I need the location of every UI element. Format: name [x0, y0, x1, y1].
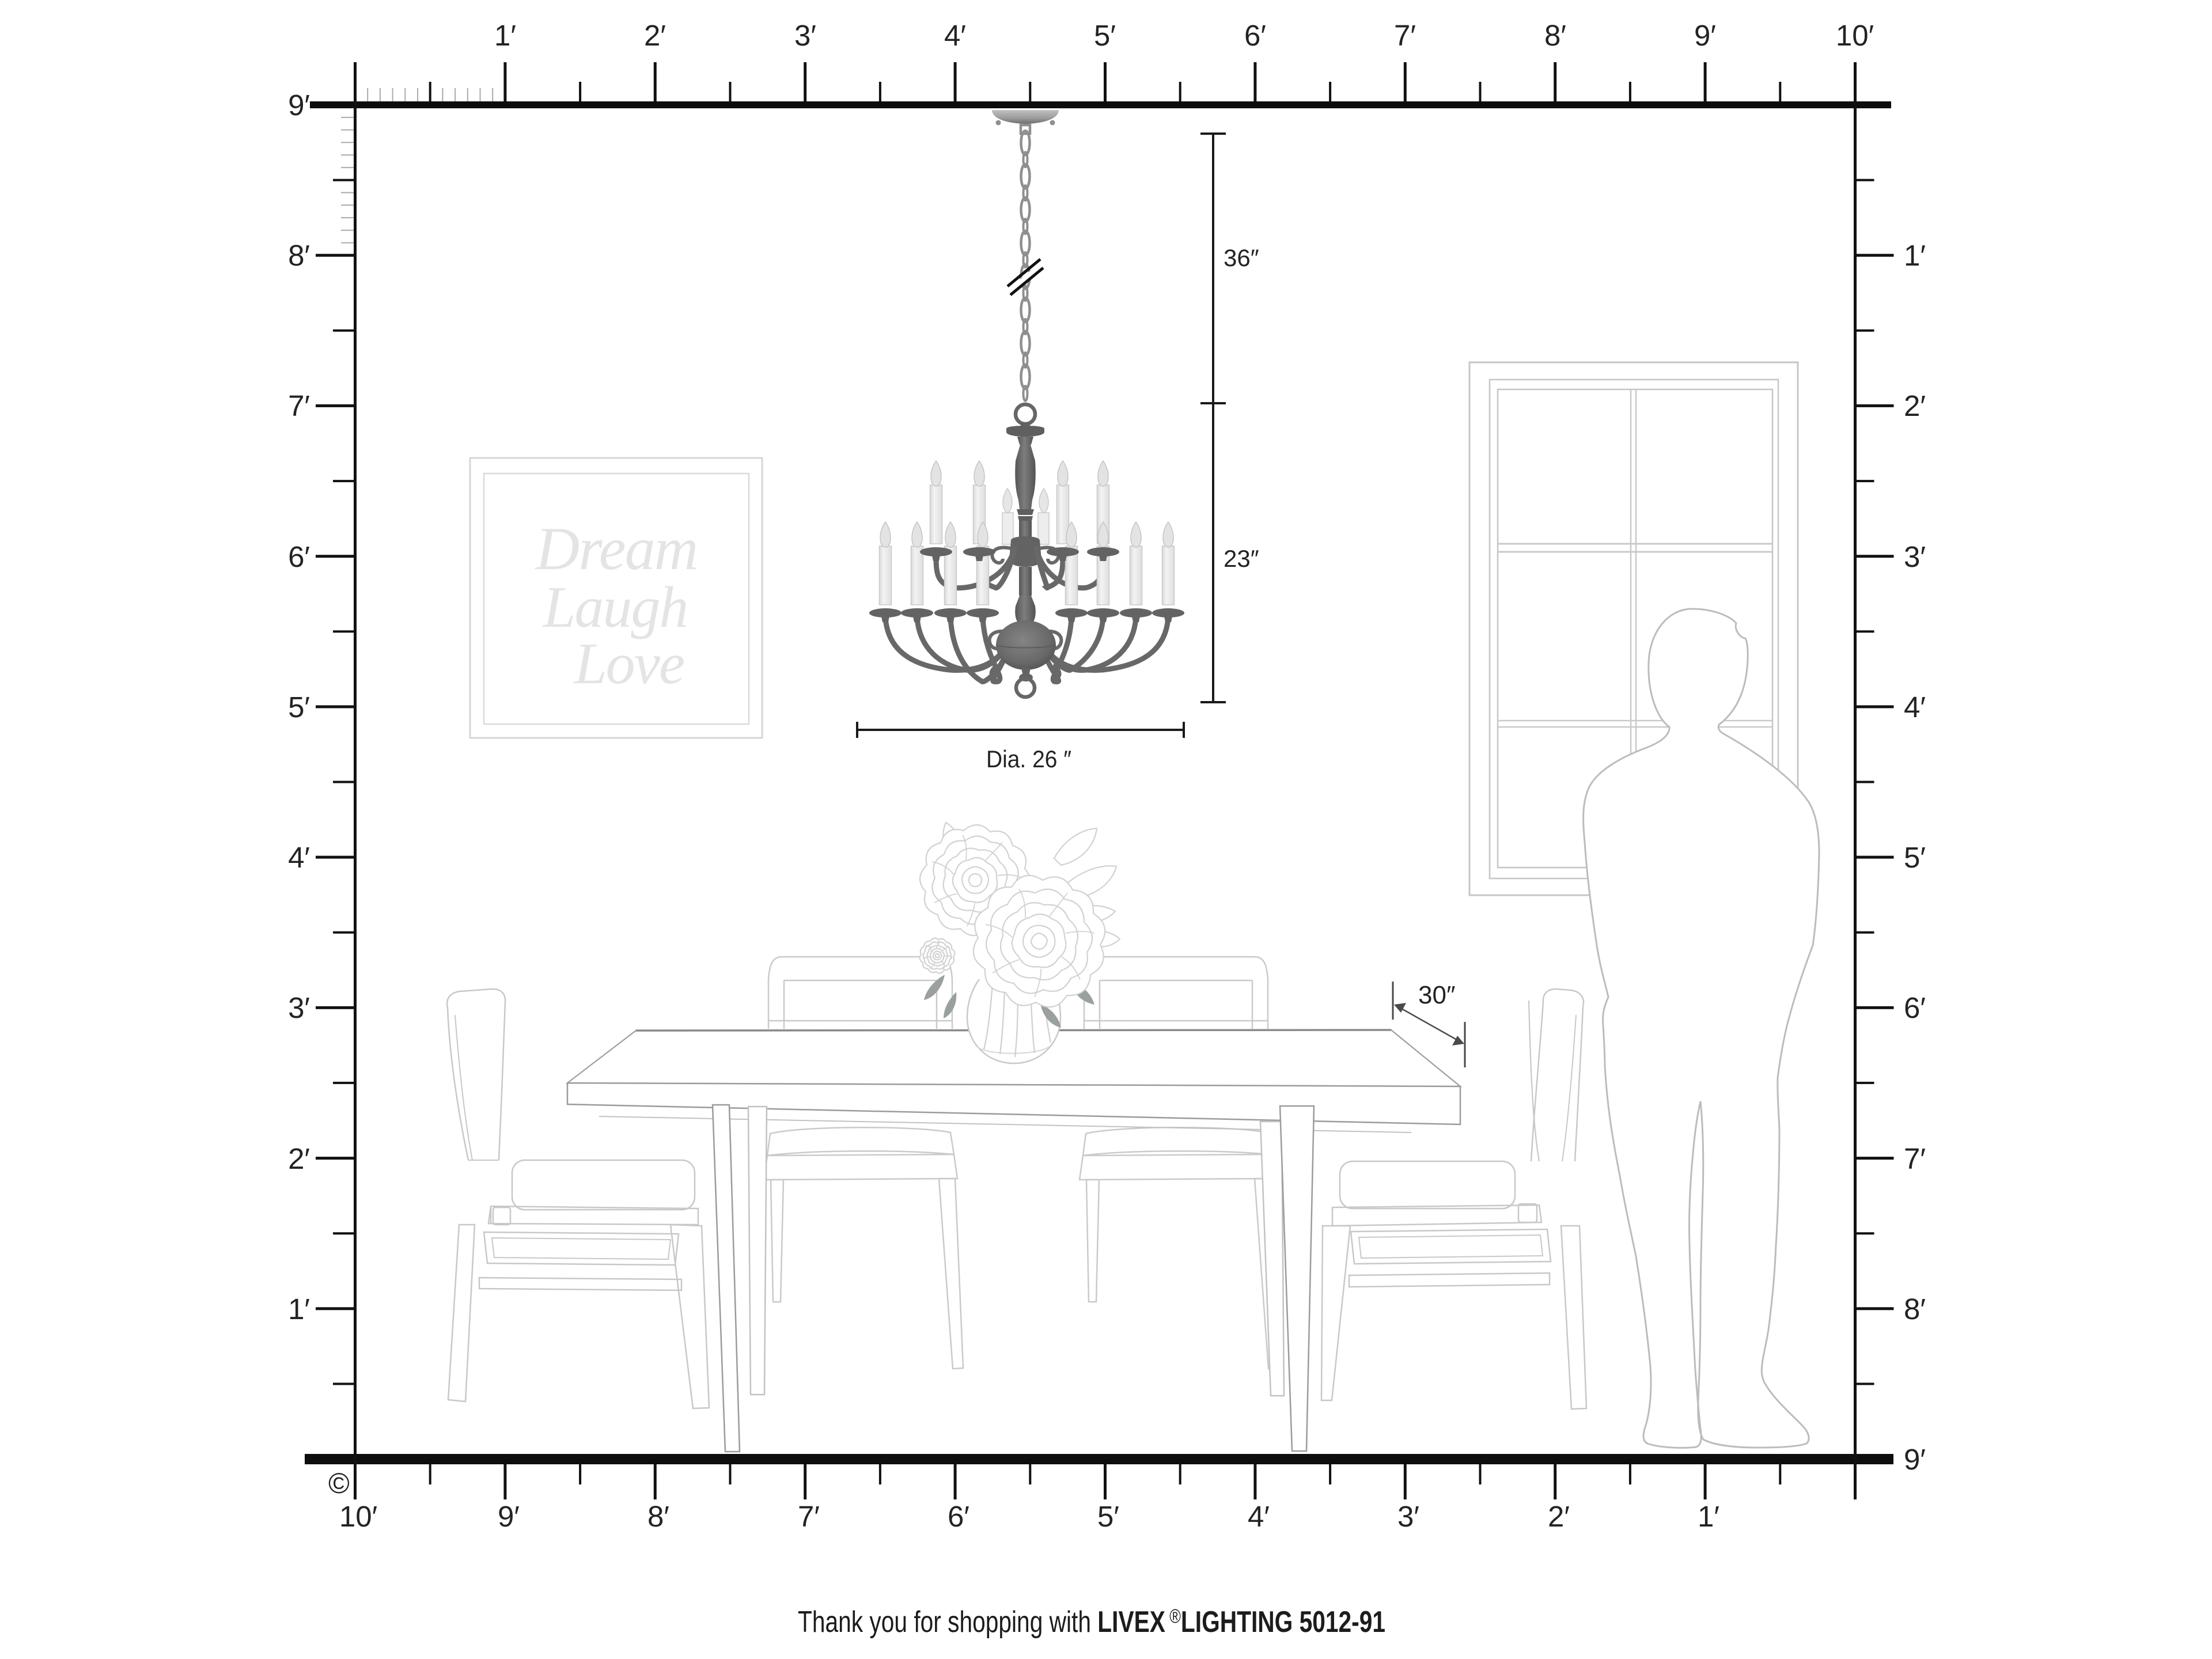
svg-text:5′: 5′ [1097, 1500, 1119, 1533]
svg-text:23″: 23″ [1224, 545, 1259, 572]
svg-text:2′: 2′ [288, 1142, 310, 1175]
svg-text:7′: 7′ [1394, 19, 1416, 52]
svg-text:1′: 1′ [494, 19, 516, 52]
svg-text:9′: 9′ [288, 89, 310, 122]
svg-text:1′: 1′ [1904, 239, 1926, 272]
svg-text:9′: 9′ [1694, 19, 1716, 52]
svg-text:4′: 4′ [944, 19, 966, 52]
svg-text:9′: 9′ [1904, 1443, 1926, 1476]
svg-text:2′: 2′ [644, 19, 666, 52]
svg-text:3′: 3′ [794, 19, 816, 52]
svg-text:7′: 7′ [1904, 1142, 1926, 1175]
svg-text:10′: 10′ [339, 1500, 377, 1533]
svg-text:5′: 5′ [1904, 841, 1926, 874]
svg-text:Dia. 26 ″: Dia. 26 ″ [986, 745, 1071, 772]
svg-text:9′: 9′ [498, 1500, 520, 1533]
svg-text:1′: 1′ [288, 1293, 310, 1325]
svg-text:30″: 30″ [1418, 981, 1456, 1009]
svg-text:7′: 7′ [288, 389, 310, 422]
svg-text:7′: 7′ [798, 1500, 820, 1533]
svg-text:©: © [328, 1467, 350, 1499]
svg-text:8′: 8′ [1544, 19, 1566, 52]
svg-text:4′: 4′ [288, 841, 310, 874]
svg-text:Thank you for shopping with LI: Thank you for shopping with LIVEX ®LIGHT… [798, 1605, 1385, 1639]
svg-text:2′: 2′ [1548, 1500, 1570, 1533]
svg-text:Love: Love [573, 631, 684, 696]
svg-text:6′: 6′ [948, 1500, 969, 1533]
svg-text:3′: 3′ [288, 991, 310, 1024]
svg-text:8′: 8′ [647, 1500, 669, 1533]
svg-text:3′: 3′ [1904, 540, 1926, 573]
svg-text:3′: 3′ [1397, 1500, 1419, 1533]
svg-text:4′: 4′ [1904, 691, 1926, 724]
svg-text:6′: 6′ [1904, 991, 1926, 1024]
svg-text:2′: 2′ [1904, 389, 1926, 422]
svg-text:8′: 8′ [288, 239, 310, 272]
svg-text:6′: 6′ [1244, 19, 1266, 52]
svg-text:36″: 36″ [1224, 244, 1259, 271]
svg-text:Laugh: Laugh [542, 575, 688, 640]
svg-text:6′: 6′ [288, 540, 310, 573]
svg-text:1′: 1′ [1698, 1500, 1719, 1533]
svg-text:5′: 5′ [1094, 19, 1116, 52]
svg-text:4′: 4′ [1248, 1500, 1270, 1533]
svg-text:Dream: Dream [535, 515, 697, 582]
svg-text:8′: 8′ [1904, 1293, 1926, 1325]
svg-text:10′: 10′ [1836, 19, 1874, 52]
svg-text:5′: 5′ [288, 691, 310, 724]
